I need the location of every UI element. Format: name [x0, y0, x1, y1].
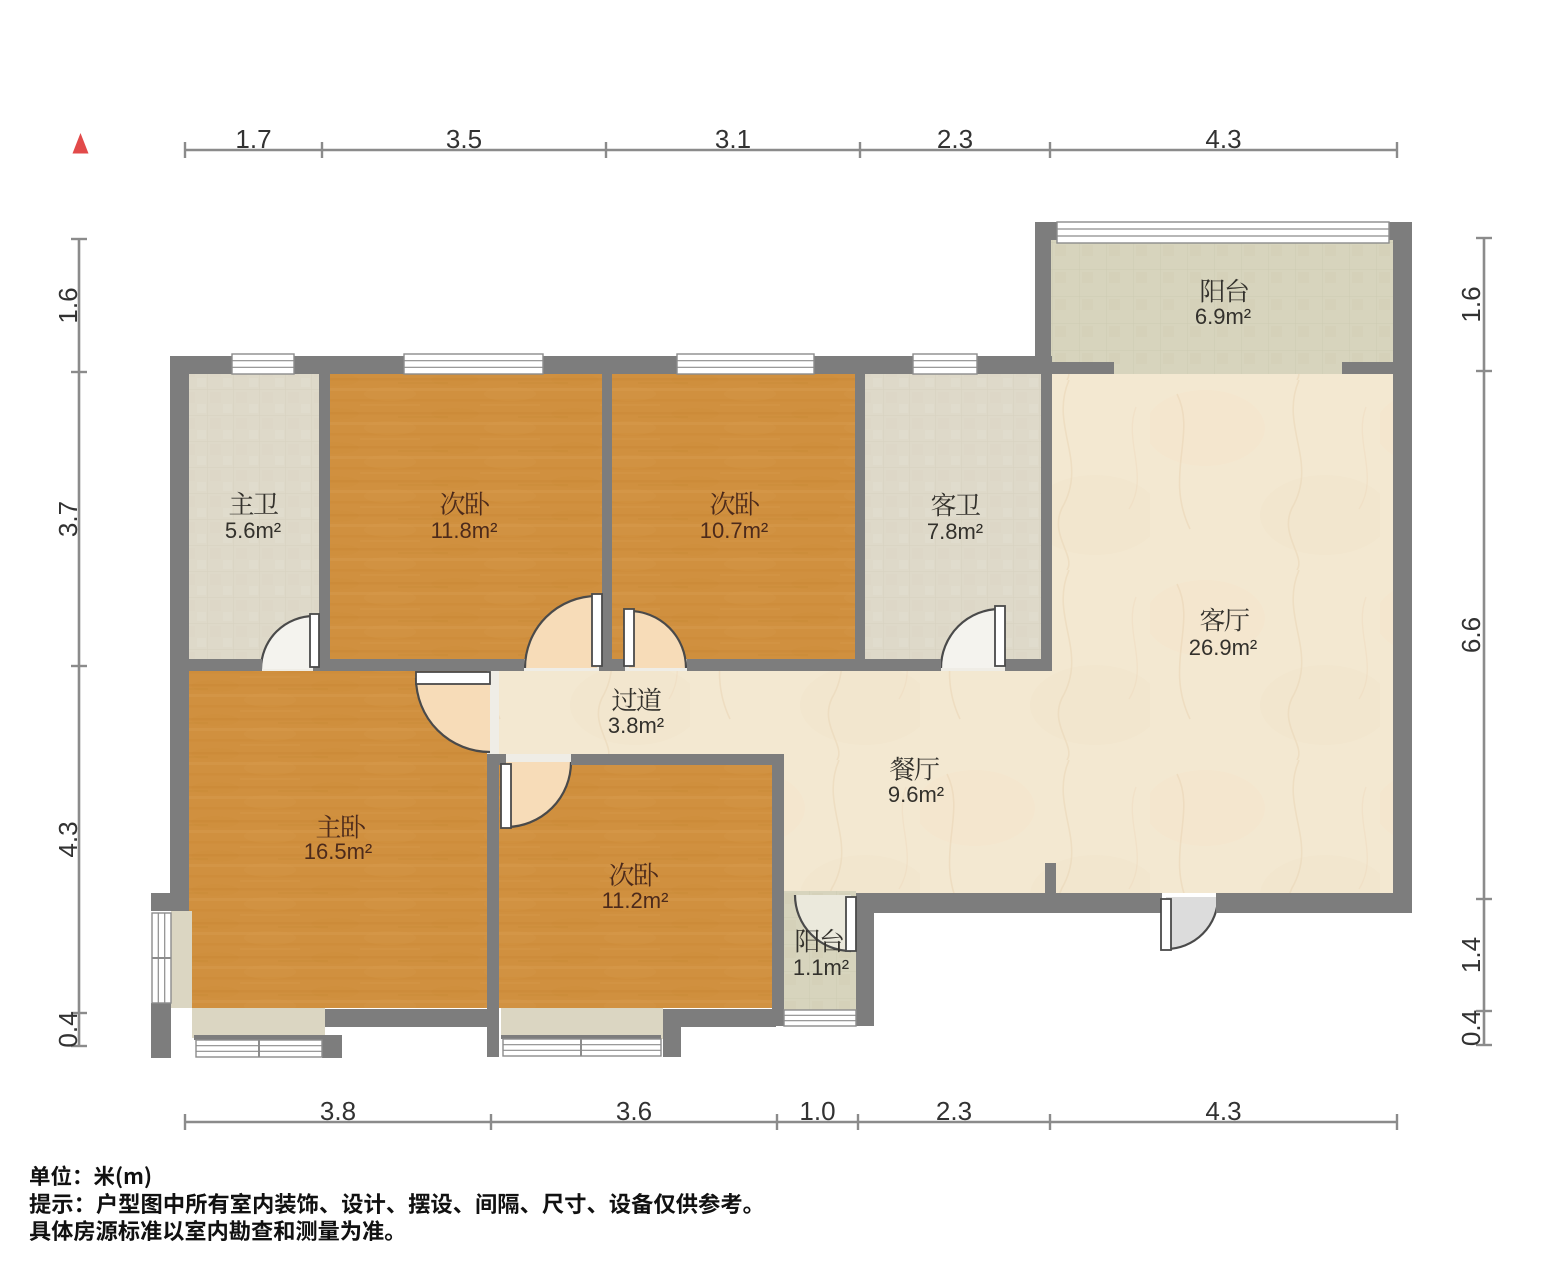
svg-text:11.2m²: 11.2m² [602, 888, 669, 913]
svg-text:6.9m²: 6.9m² [1195, 304, 1251, 329]
svg-text:3.6: 3.6 [616, 1096, 652, 1126]
svg-text:2.3: 2.3 [937, 124, 973, 154]
svg-text:10.7m²: 10.7m² [700, 518, 768, 543]
svg-text:1.6: 1.6 [53, 287, 83, 323]
svg-text:1.7: 1.7 [235, 124, 271, 154]
svg-text:4.3: 4.3 [1205, 1096, 1241, 1126]
svg-text:3.8: 3.8 [320, 1096, 356, 1126]
svg-text:6.6: 6.6 [1456, 617, 1486, 653]
svg-text:7.8m²: 7.8m² [927, 519, 983, 544]
svg-text:1.1m²: 1.1m² [793, 955, 849, 980]
svg-text:3.1: 3.1 [715, 124, 751, 154]
svg-text:1.6: 1.6 [1456, 286, 1486, 322]
svg-text:5.6m²: 5.6m² [225, 518, 281, 543]
svg-text:0.4: 0.4 [1456, 1010, 1486, 1046]
svg-text:11.8m²: 11.8m² [431, 518, 498, 543]
svg-text:4.3: 4.3 [53, 821, 83, 857]
svg-text:3.8m²: 3.8m² [608, 713, 664, 738]
svg-text:3.7: 3.7 [53, 501, 83, 537]
svg-text:2.3: 2.3 [936, 1096, 972, 1126]
svg-text:0.4: 0.4 [53, 1011, 83, 1047]
svg-text:4.3: 4.3 [1205, 124, 1241, 154]
svg-text:16.5m²: 16.5m² [304, 839, 372, 864]
svg-text:1.0: 1.0 [799, 1096, 835, 1126]
svg-text:1.4: 1.4 [1456, 937, 1486, 973]
svg-text:26.9m²: 26.9m² [1189, 635, 1257, 660]
svg-text:3.5: 3.5 [446, 124, 482, 154]
svg-text:9.6m²: 9.6m² [888, 782, 944, 807]
